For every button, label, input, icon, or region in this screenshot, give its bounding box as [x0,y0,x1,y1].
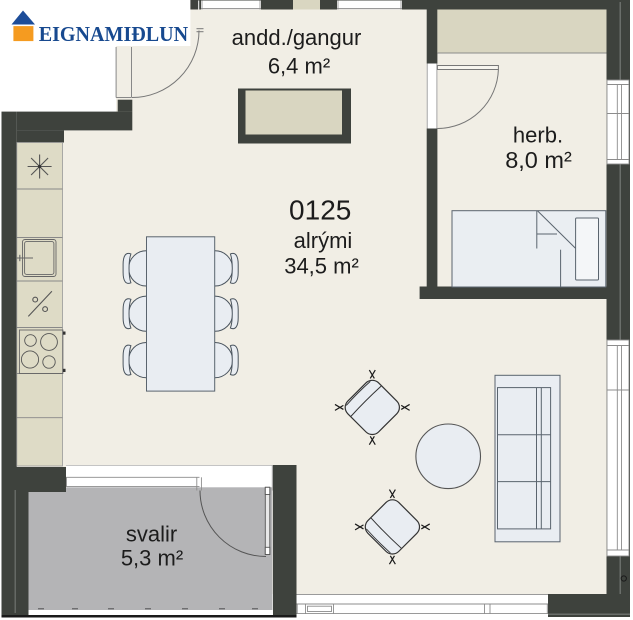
svg-text:8,0 m²: 8,0 m² [505,147,572,173]
svg-text:alrými: alrými [294,228,353,253]
svg-text:andd./gangur: andd./gangur [232,25,362,50]
svg-text:34,5 m²: 34,5 m² [284,254,359,279]
svg-text:EIGNAMIÐLUN: EIGNAMIÐLUN [39,22,189,46]
svg-text:5,3 m²: 5,3 m² [121,546,183,571]
svg-text:svalir: svalir [126,522,177,547]
svg-text:6,4 m²: 6,4 m² [268,54,330,79]
svg-text:0125: 0125 [289,195,351,226]
svg-text:herb.: herb. [513,123,563,148]
